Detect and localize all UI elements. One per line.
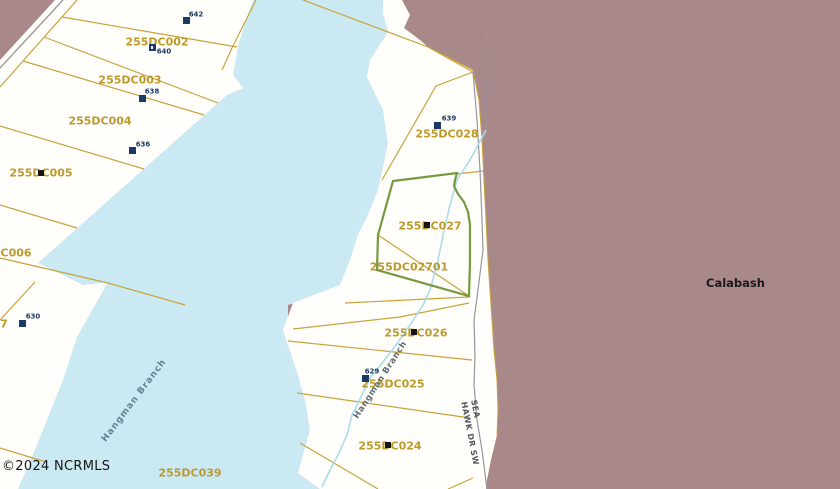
parcel-label-255DC002: 255DC002 bbox=[125, 37, 188, 48]
address-number-630: 630 bbox=[26, 314, 41, 321]
address-number-642: 642 bbox=[189, 12, 204, 19]
parcel-label-255DC006: 255DC006 bbox=[0, 248, 32, 259]
parcel-label-255DC028: 255DC028 bbox=[415, 129, 478, 140]
copyright-attribution: ©2024 NCRMLS bbox=[2, 459, 110, 474]
parcel-label-255DC039: 255DC039 bbox=[158, 468, 221, 479]
address-number-639: 639 bbox=[442, 116, 457, 123]
parcel-centroid-marker-255DC027 bbox=[424, 222, 430, 228]
parcel-label-255DC02701: 255DC02701 bbox=[370, 262, 448, 273]
parcel-label-partial-7: 7 bbox=[0, 319, 8, 330]
address-marker-629 bbox=[362, 375, 369, 382]
address-marker-638 bbox=[139, 95, 146, 102]
parcel-label-255DC003: 255DC003 bbox=[98, 75, 161, 86]
parcel-centroid-marker-255DC005 bbox=[38, 170, 44, 176]
parcel-centroid-marker-255DC024 bbox=[385, 442, 391, 448]
parcel-label-255DC027: 255DC027 bbox=[398, 221, 461, 232]
address-marker-640 bbox=[149, 44, 156, 51]
parcel-centroid-marker-255DC026 bbox=[411, 329, 417, 335]
address-number-638: 638 bbox=[145, 89, 160, 96]
parcel-label-255DC004: 255DC004 bbox=[68, 116, 131, 127]
address-number-636: 636 bbox=[136, 142, 151, 149]
parcel-map-canvas[interactable]: 255DC002 255DC003 255DC004 255DC005 255D… bbox=[0, 0, 840, 489]
address-marker-630 bbox=[19, 320, 26, 327]
place-label-calabash: Calabash bbox=[706, 276, 765, 290]
marker-dot bbox=[151, 46, 153, 49]
address-marker-639 bbox=[434, 122, 441, 129]
address-number-640: 640 bbox=[157, 49, 172, 56]
